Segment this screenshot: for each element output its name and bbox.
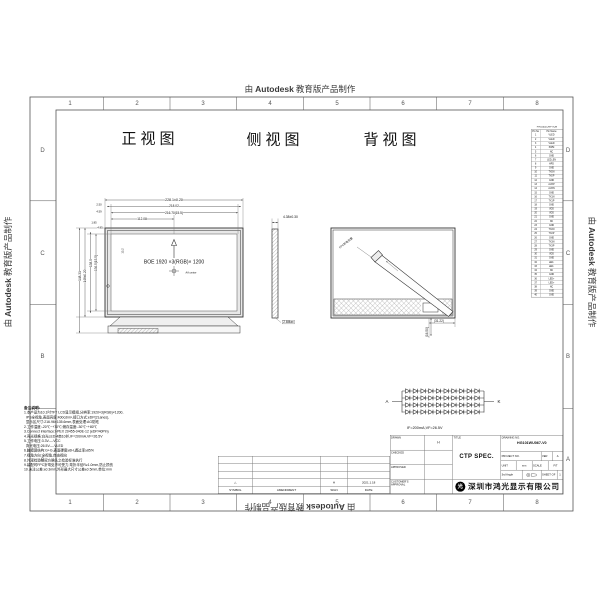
watermark-text: 教育版产品制作 [296,84,356,94]
cell [320,472,347,479]
cell [218,464,252,471]
checked-value [424,450,452,464]
angle-sheet-row: 3rd Angle SHEET OF 1 [501,470,563,479]
dim-aa-height: 136.5(15.5) [94,255,97,271]
zone-letter-left: D [40,148,44,154]
anode-label: A [386,399,389,403]
drawn-row: DRAWN H [390,435,452,450]
sign-header: SIGN [320,487,347,495]
zone-letter-left: C [40,251,44,257]
zone-number-top: 7 [468,101,471,107]
cell [347,457,389,464]
zone-letter-right: A [566,457,570,463]
dim-fpc-x: (31.22) [434,319,444,322]
pin-name: GND [540,293,562,297]
dim-outline-width: 228.1±0.20 [165,198,183,202]
customer-approval-label: CUSTOMER'S APPROVAL [390,479,424,493]
zone-number-top: 8 [535,101,538,107]
third-angle-symbol [522,470,541,479]
unit-value: mm [516,461,532,470]
led-strings [402,389,484,414]
dim-small-2: 4.59 [96,211,101,214]
drawing-sheet: 由Autodesk教育版产品制作 由Autodesk教育版产品制作 由Autod… [0,0,600,600]
led-diode-icon [452,403,456,407]
dim-aa-width: 216.70(15.5) [165,211,183,214]
watermark-brand: Autodesk [306,502,345,512]
led-diode-icon [413,410,417,414]
sheet-label: SHEET [542,473,551,476]
led-diode-icon [444,389,448,393]
zone-number-bottom: 8 [535,500,538,506]
watermark-left: 由Autodesk教育版产品制作 [2,217,14,328]
watermark-text: 由 [245,84,254,94]
title-label: TITLE [454,436,461,439]
dim-va-height: 138.5 [89,259,92,267]
dim-thickness: 4.38±0.30 [283,215,298,218]
pin-row: 40GND [531,293,562,297]
led-diode-icon [475,389,479,393]
cell [320,464,347,471]
dim-small-3: 1.85 [91,221,96,224]
led-diode-icon [459,410,463,414]
note-line: 10.未注公差:±0.3mm,外形最大尺寸公差±0.5mm,单位:mm [24,468,207,473]
zone-letter-right: D [566,148,570,154]
sheet-of-label: SHEET OF [541,470,557,479]
front-view-label: 正视图 [121,128,178,149]
led-diode-icon [413,389,417,393]
pin-table-title: PIN DESCRIPTION [531,126,563,129]
unit-scale-row: UNIT mm SCALE FIT [501,461,563,470]
led-diode-icon [421,396,425,400]
led-diode-icon [475,403,479,407]
led-diode-icon [452,396,456,400]
watermark-text: 由 [347,502,356,512]
revision-row-empty [218,471,389,478]
zone-number-bottom: 7 [468,500,471,506]
zone-letter-left: A [40,457,44,463]
cell [252,464,320,471]
symbol-header: SYMBOL [218,487,252,495]
led-diode-icon [413,403,417,407]
cell [252,457,320,464]
checked-label: CHECKED [390,450,424,464]
aa-center-note: AA center [186,271,197,274]
led-diode-icon [406,396,410,400]
customer-approval-row: CUSTOMER'S APPROVAL [390,479,452,494]
project-no-row: PROJECT NO. VER A [501,451,563,460]
watermark-right: 由Autodesk教育版产品制作 [586,217,598,328]
thickness-max-note: 2.6Max [282,320,295,324]
zone-number-bottom: 4 [268,500,271,506]
cathode-label: K [498,399,501,403]
led-diode-icon [421,410,425,414]
zone-number-top: 4 [268,101,271,107]
drawn-label: DRAWN [390,435,424,450]
customer-approval-value [424,479,452,493]
side-view-drawing [272,229,278,318]
back-view-label: 背视图 [363,129,420,150]
led-diode-icon [459,389,463,393]
led-diode-icon [436,410,440,414]
led-diode-icon [413,396,417,400]
company-name: 深圳市鸿光显示有限公司 [468,482,560,491]
dim-small-4: 4.85 [97,226,102,229]
drawing-info-cells: DRAWING NO. HG101WU067-V0 PROJECT NO. VE… [501,435,563,479]
approved-value [424,465,452,479]
dim-small-1: 2.50 [96,204,101,207]
approval-column: DRAWN H CHECKED APPROVED CUSTOMER'S APPR… [390,435,452,493]
led-diode-icon [467,396,471,400]
zone-number-top: 2 [135,101,138,107]
cell [218,457,252,464]
led-diode-icon [444,410,448,414]
notes-heading: 备注说明: [24,406,207,410]
drawing-no-cell: DRAWING NO. HG101WU067-V0 [501,435,563,451]
pin-number: 40 [531,293,540,297]
pin-description-table: PIN DESCRIPTION Pin NoPin Name 1VLED2VLE… [531,126,563,297]
revision-row-empty [218,457,389,464]
scale-label: SCALE [532,461,548,470]
zone-number-top: 3 [201,101,204,107]
led-diode-icon [429,410,433,414]
led-diode-icon [459,403,463,407]
pin-table-grid: Pin NoPin Name 1VLED2VLED3VLED4PWM5NC6GN… [531,129,563,297]
led-diode-icon [436,389,440,393]
led-diode-icon [444,403,448,407]
zone-letter-left: B [40,354,44,360]
watermark-brand: Autodesk [255,84,294,94]
approved-row: APPROVED [390,464,452,479]
backlight-circuit [392,389,494,414]
watermark-text: 教育版产品制作 [245,502,305,512]
led-diode-icon [406,410,410,414]
title-value: CTP SPEC. [453,453,501,460]
amendment-header: AMENDMENT [252,487,320,495]
zone-letter-right: B [566,354,570,360]
date-header: DATE [347,487,389,495]
third-angle-label: 3rd Angle [501,470,522,479]
watermark-text: 教育版产品制作 [3,217,13,277]
led-diode-icon [467,389,471,393]
dim-outline-height: 148±0.20 [83,269,86,282]
company-row: 光 深圳市鸿光显示有限公司 [453,479,563,493]
zone-number-top: 6 [401,101,404,107]
front-view-drawing [105,228,243,333]
led-diode-icon [444,396,448,400]
title-cell: TITLE CTP SPEC. [453,435,501,479]
dim-fpc-y: (16.50) [425,327,428,337]
unit-label: UNIT [501,461,516,470]
zone-number-top: 1 [68,101,71,107]
watermark-top: 由Autodesk教育版产品制作 [245,83,356,95]
sheet-value: 1 [557,470,563,479]
revision-header-row: SYMBOL AMENDMENT SIGN DATE [218,486,389,494]
drawn-value: H [424,435,452,450]
company-logo-icon: 光 [455,482,465,492]
led-diode-icon [436,396,440,400]
led-diode-icon [467,410,471,414]
cell [347,464,389,471]
revision-row-empty [218,464,389,471]
notes-lines: 1.本产品为10.1吋TFT LCD显示模组,分辨率:1920×3(RGB)×1… [24,411,207,473]
zone-number-bottom: 3 [201,500,204,506]
led-diode-icon [406,403,410,407]
ver-label: VER [541,452,552,461]
cell [252,472,320,479]
title-column: TITLE CTP SPEC. DRAWING NO. HG101WU067-V… [452,435,562,493]
watermark-bottom: 由Autodesk教育版产品制作 [245,501,356,513]
led-diode-icon [421,389,425,393]
led-diode-icon [459,396,463,400]
revision-row: △ H 2021.1.18 [218,479,389,487]
side-view-label: 侧视图 [246,129,303,150]
cell [347,472,389,479]
pin-rows: 1VLED2VLED3VLED4PWM5NC6GND7LED_EN8HPD9GN… [531,133,562,297]
revision-table: △ H 2021.1.18 SYMBOL AMENDMENT SIGN DATE [218,456,390,494]
screen-resolution-text: BOE 1920 ×3(RGB)× 1200 [144,259,204,264]
led-diode-icon [406,389,410,393]
led-diode-icon [429,396,433,400]
zone-letter-right: C [566,251,570,257]
checked-row: CHECKED [390,450,452,465]
approved-label: APPROVED [390,465,424,479]
drawing-no-label: DRAWING NO. [501,435,563,439]
projection-symbol-icon [525,472,538,477]
project-no-label: PROJECT NO. [501,452,541,461]
led-diode-icon [421,403,425,407]
led-diode-icon [429,389,433,393]
watermark-brand: Autodesk [3,278,13,317]
led-diode-icon [475,396,479,400]
led-diode-icon [452,389,456,393]
ver-value: A [552,452,562,461]
cell [320,457,347,464]
zone-number-top: 5 [335,101,338,107]
revision-sign: H [320,479,347,486]
zone-number-bottom: 1 [68,500,71,506]
of-label: OF [552,473,556,476]
led-diode-icon [436,403,440,407]
watermark-text: 由 [3,319,13,328]
zone-number-bottom: 2 [135,500,138,506]
notes-block: 备注说明: 1.本产品为10.1吋TFT LCD显示模组,分辨率:1920×3(… [24,406,207,473]
title-block: DRAWN H CHECKED APPROVED CUSTOMER'S APPR… [390,435,563,494]
customer-label-line2: APPROVAL [391,483,424,486]
led-diode-icon [429,403,433,407]
dim-outline-height-full: 148.31 [78,271,81,281]
drawing-no-value: HG101WU067-V0 [501,441,563,445]
watermark-text: 教育版产品制作 [587,268,597,328]
scale-value: FIT [548,461,563,470]
led-diode-icon [475,410,479,414]
backlight-spec: IF=200mA;VF=26.5V [407,426,443,430]
revision-symbol: △ [218,479,252,486]
dim-center-offset: 112.08 [137,217,146,220]
led-diode-icon [452,410,456,414]
dim-inner: 13.2 [122,248,125,253]
dim-va-width: 218.02 [169,204,179,207]
watermark-brand: Autodesk [587,227,597,266]
revision-date: 2021.1.18 [347,479,389,486]
watermark-text: 由 [587,217,597,226]
zone-number-bottom: 5 [335,500,338,506]
cell [218,472,252,479]
led-diode-icon [467,403,471,407]
revision-amendment [252,479,320,486]
zone-number-bottom: 6 [401,500,404,506]
